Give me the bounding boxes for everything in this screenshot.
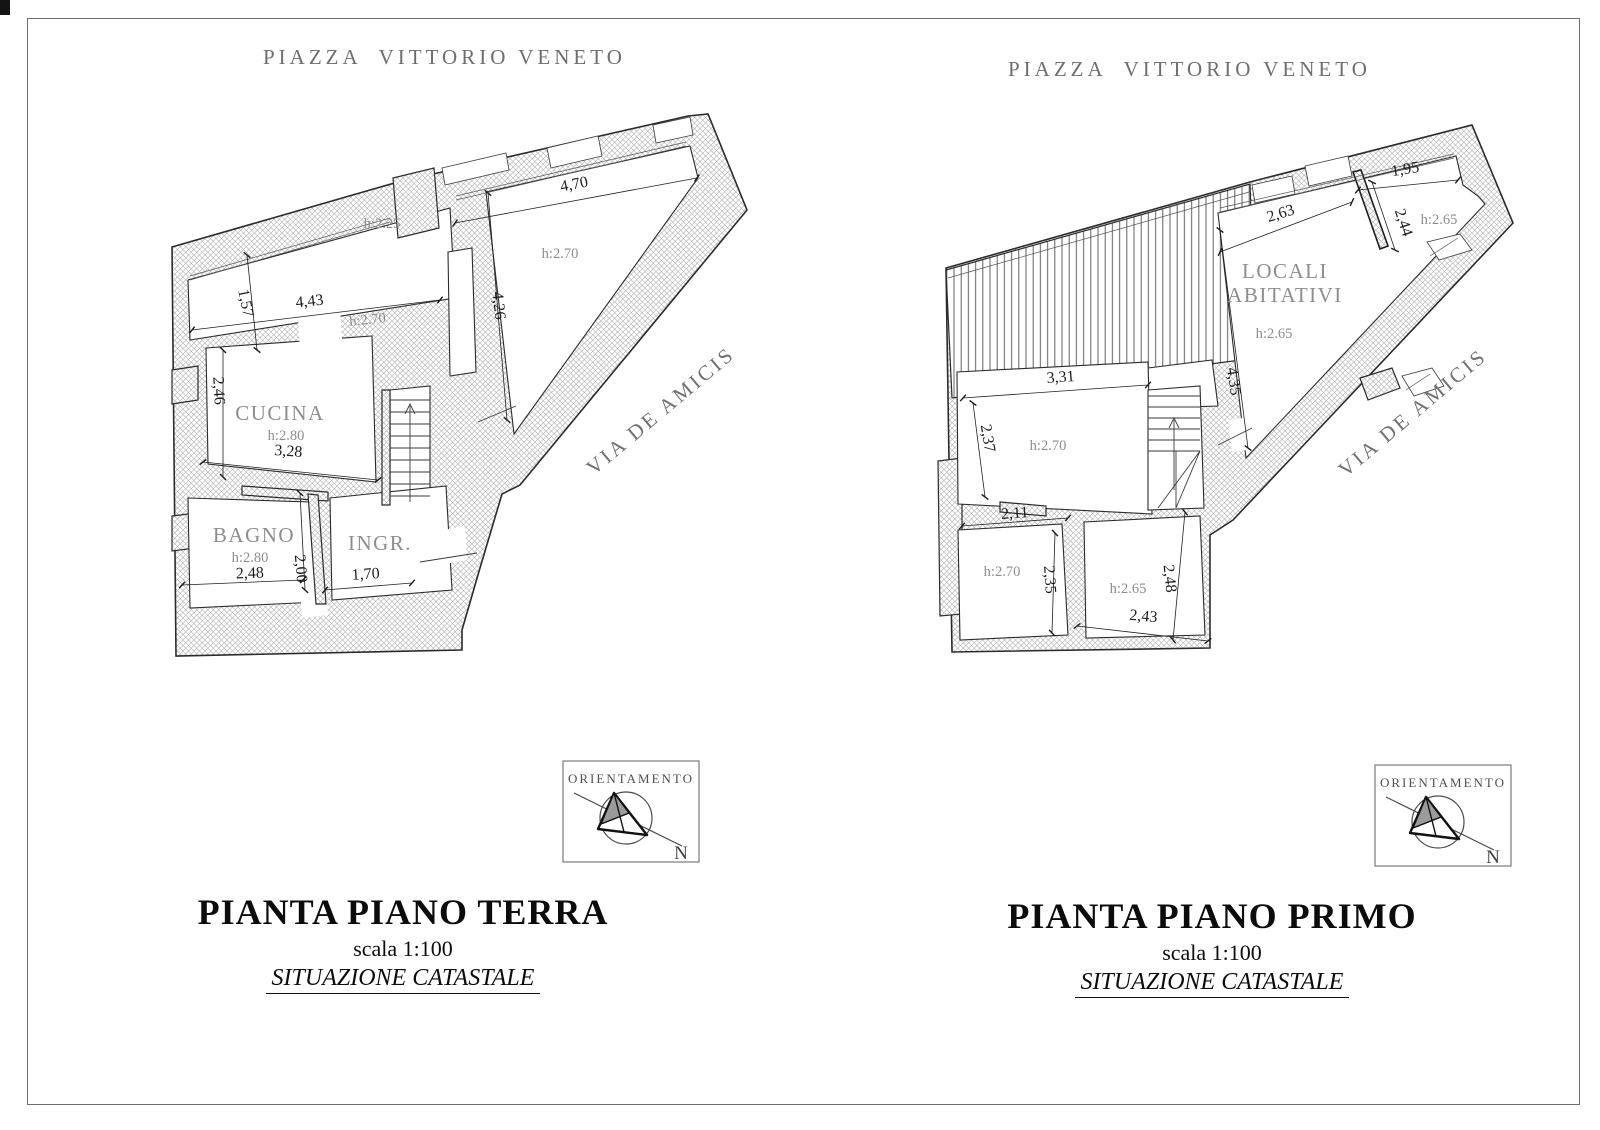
street-label-piazza-terra: PIAZZA VITTORIO VENETO [263,45,626,70]
dim-label-248: 2,48 [1160,564,1180,594]
height-label-locali: h:2.65 [1256,326,1293,342]
orientation-title: ORIENTAMENTO [1380,775,1506,790]
corner-mark [0,0,10,15]
room-label-ingresso: INGR. [348,531,412,555]
height-label-270-small: h:2.70 [984,564,1021,580]
plan-scale-primo: scala 1:100 [962,940,1462,966]
room-label-locali-1: LOCALI [1242,259,1328,283]
dim-label-426: 4,26 [489,291,509,321]
street-label-piazza-primo: PIAZZA VITTORIO VENETO [1008,57,1371,82]
height-label-265-top: h:2.65 [1421,212,1458,228]
dim-label-235: 2,35 [1040,565,1059,594]
height-label-265-mid: h:2.65 [1110,581,1147,597]
dim-label-200: 2,00 [291,554,310,583]
plan-title-primo: PIANTA PIANO PRIMO [962,895,1462,937]
dim-label-211: 2,11 [1000,504,1029,523]
height-label-225: h:2.25 [364,216,401,232]
plan-title-terra: PIANTA PIANO TERRA [153,891,653,933]
dim-label-331: 3,31 [1046,368,1075,387]
plan-subtitle-primo: SITUAZIONE CATASTALE [1075,969,1350,998]
room-label-bagno: BAGNO [213,523,295,547]
titleblock-primo: PIANTA PIANO PRIMO scala 1:100 SITUAZION… [962,895,1462,998]
height-label-270-tri: h:2.70 [542,246,579,262]
terra-door-gap [443,526,467,564]
orientation-box-primo: ORIENTAMENTO N [1374,764,1512,868]
terra-wall-pillar [172,366,198,404]
titleblock-terra: PIANTA PIANO TERRA scala 1:100 SITUAZION… [153,891,653,994]
dim-label-170: 1,70 [351,565,380,584]
dim-label-443: 4,43 [295,292,325,312]
plan-scale-terra: scala 1:100 [153,936,653,962]
dim-label-248: 2,48 [236,565,265,583]
orientation-box-terra: ORIENTAMENTO N [562,760,700,864]
terra-wall-stair-left [382,390,390,505]
room-label-cucina: CUCINA [235,401,325,425]
compass-north-label: N [674,843,688,864]
orientation-title: ORIENTAMENTO [568,771,694,786]
floor-plan-terra: 4,43 h:2.70 h:2.25 1,57 4,70 h:2.70 4,26… [150,90,770,670]
dim-label-246: 2,46 [209,376,227,405]
height-label-cucina: h:2.80 [268,428,305,444]
dim-label-328: 3,28 [274,442,303,461]
dim-label-243: 2,43 [1129,607,1158,626]
height-label-270-main: h:2.70 [1030,438,1067,454]
terra-corridor [448,248,476,376]
plan-subtitle-terra: SITUAZIONE CATASTALE [266,965,541,994]
drawing-sheet: PIAZZA VITTORIO VENETO PIAZZA VITTORIO V… [0,0,1600,1130]
floor-plan-primo: 2,63 1,95 2,44 h:2.65 LOCALI ABITATIVI h… [900,90,1520,670]
compass-north-label: N [1486,847,1500,868]
room-label-locali-2: ABITATIVI [1227,283,1343,307]
